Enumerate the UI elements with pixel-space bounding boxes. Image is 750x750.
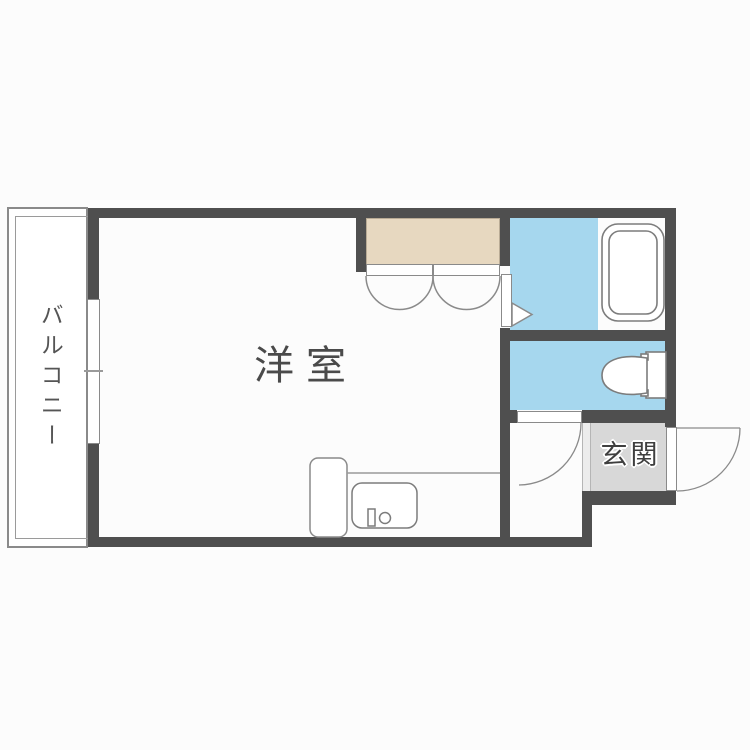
western-room-label: 洋室 [210, 344, 390, 388]
entrance-door-swing [677, 428, 740, 491]
kitchen-sink [352, 483, 417, 528]
entrance-label: 玄関 [589, 441, 669, 471]
balcony-label: バルコニー [36, 303, 61, 473]
toilet-door-swing [519, 423, 581, 485]
bathtub [602, 224, 664, 321]
bathroom-door-arrow [512, 303, 532, 326]
closet-bifold-doors [366, 276, 500, 310]
refrigerator-space [310, 458, 347, 537]
toilet [602, 352, 666, 398]
floor-plan: 洋室 バルコニー 玄関 [0, 0, 750, 750]
faucet-icon [368, 509, 375, 526]
drain-icon [380, 513, 391, 524]
